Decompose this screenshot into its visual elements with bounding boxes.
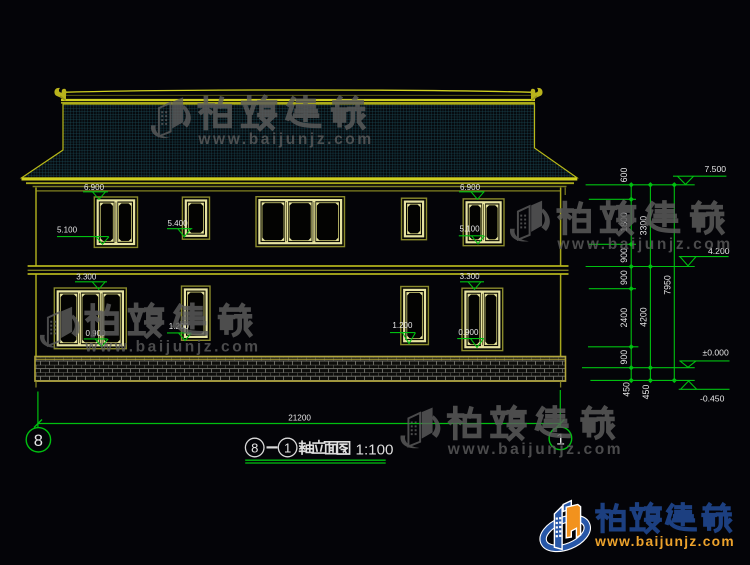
svg-text:3.300: 3.300 [460,272,481,281]
svg-text:6.900: 6.900 [460,183,481,192]
svg-text:±0.000: ±0.000 [703,348,729,358]
svg-text:4200: 4200 [639,307,649,327]
svg-text:5.100: 5.100 [57,225,78,234]
svg-text:www.baijunjz.com: www.baijunjz.com [447,441,623,458]
svg-text:-0.450: -0.450 [700,394,725,404]
svg-text:7950: 7950 [663,275,673,295]
svg-text:www.baijunjz.com: www.baijunjz.com [197,131,373,148]
svg-text:5.100: 5.100 [460,224,481,233]
svg-text:8: 8 [251,440,258,455]
svg-text:6.900: 6.900 [84,183,105,192]
svg-text:8: 8 [34,432,43,450]
svg-text:600: 600 [619,168,629,183]
svg-text:900: 900 [619,270,629,285]
svg-text:www.baijunjz.com: www.baijunjz.com [594,534,735,549]
svg-text:www.baijunjz.com: www.baijunjz.com [556,236,732,253]
svg-text:3.300: 3.300 [76,272,97,281]
svg-text:900: 900 [619,350,629,365]
svg-text:2400: 2400 [619,308,629,328]
svg-text:450: 450 [622,382,632,397]
svg-text:7.500: 7.500 [705,164,727,174]
svg-text:21200: 21200 [288,414,311,423]
svg-text:0.900: 0.900 [458,328,479,337]
svg-text:1: 1 [284,440,291,455]
svg-text:450: 450 [641,385,651,400]
svg-text:1:100: 1:100 [356,442,394,459]
svg-text:1.200: 1.200 [392,321,413,330]
svg-text:5.400: 5.400 [168,219,189,228]
svg-text:www.baijunjz.com: www.baijunjz.com [84,338,260,355]
